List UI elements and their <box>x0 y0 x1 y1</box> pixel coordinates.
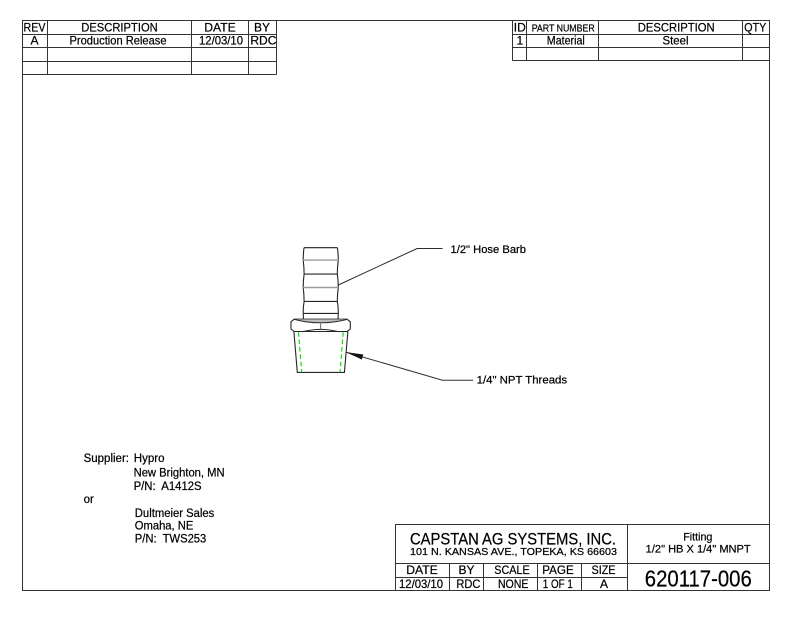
svg-text:ID: ID <box>514 21 526 35</box>
svg-text:DESCRIPTION: DESCRIPTION <box>81 21 158 35</box>
svg-text:Dultmeier Sales: Dultmeier Sales <box>135 508 215 520</box>
svg-text:1 OF 1: 1 OF 1 <box>543 577 573 591</box>
svg-text:SCALE: SCALE <box>494 563 530 577</box>
svg-text:QTY: QTY <box>744 21 766 35</box>
svg-text:1/2" Hose Barb: 1/2" Hose Barb <box>451 244 527 256</box>
svg-text:12/03/10: 12/03/10 <box>199 34 243 48</box>
svg-text:NONE: NONE <box>498 577 529 591</box>
svg-text:DESCRIPTION: DESCRIPTION <box>638 21 715 35</box>
svg-text:A: A <box>600 577 608 591</box>
svg-text:Omaha, NE: Omaha, NE <box>135 521 194 533</box>
svg-text:1/2" HB X 1/4" MNPT: 1/2" HB X 1/4" MNPT <box>646 544 751 556</box>
svg-text:PART NUMBER: PART NUMBER <box>532 23 595 34</box>
svg-text:BY: BY <box>459 563 475 577</box>
svg-text:A: A <box>30 34 38 48</box>
svg-text:101 N. KANSAS AVE., TOPEKA, KS: 101 N. KANSAS AVE., TOPEKA, KS 66603 <box>410 546 617 558</box>
svg-text:RDC: RDC <box>250 34 276 48</box>
svg-text:1: 1 <box>516 34 523 48</box>
svg-text:Fitting: Fitting <box>683 532 712 544</box>
svg-text:REV: REV <box>24 21 46 35</box>
svg-text:or: or <box>84 494 94 506</box>
svg-text:SIZE: SIZE <box>592 563 616 577</box>
svg-text:Material: Material <box>547 36 585 48</box>
svg-text:DATE: DATE <box>406 563 438 577</box>
svg-text:New Brighton, MN: New Brighton, MN <box>134 467 225 479</box>
svg-text:12/03/10: 12/03/10 <box>399 577 443 591</box>
svg-text:BY: BY <box>254 21 270 35</box>
svg-text:Steel: Steel <box>663 34 689 48</box>
svg-text:Supplier:: Supplier: <box>84 453 129 465</box>
svg-text:P/N: TWS253: P/N: TWS253 <box>135 534 207 546</box>
svg-text:DATE: DATE <box>204 21 236 35</box>
svg-text:620117-006: 620117-006 <box>645 565 752 591</box>
svg-text:PAGE: PAGE <box>542 563 574 577</box>
svg-text:P/N: A1412S: P/N: A1412S <box>134 481 202 493</box>
svg-text:1/4" NPT Threads: 1/4" NPT Threads <box>477 374 568 386</box>
svg-text:RDC: RDC <box>456 577 480 591</box>
svg-text:Hypro: Hypro <box>134 453 165 465</box>
svg-text:Production Release: Production Release <box>70 34 167 48</box>
